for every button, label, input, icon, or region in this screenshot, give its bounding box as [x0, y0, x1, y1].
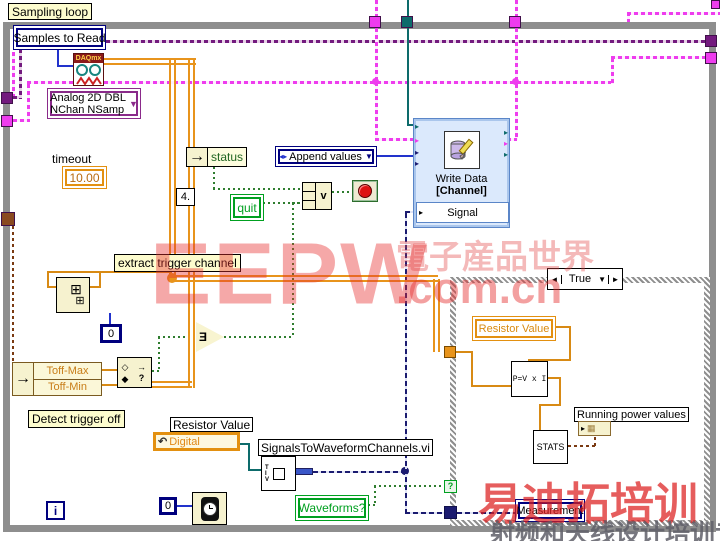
port-arrow-icon: ▸ — [504, 139, 508, 148]
write-data-icon — [444, 131, 480, 169]
enum-arrows-icon: ◂▸ — [279, 152, 287, 161]
wire-data-vert1 — [169, 58, 176, 280]
zero-wait-value: 0 — [165, 500, 171, 512]
measurement-label: Measurement — [516, 505, 583, 517]
wire-branch-a-top — [375, 0, 378, 82]
wire-branch-a-in — [375, 138, 413, 141]
waveforms-label: Waveforms? — [299, 501, 366, 515]
or-glyph: v — [316, 190, 331, 202]
wire-junction-pink1 — [372, 78, 379, 85]
wire-data-casedrop — [433, 279, 440, 352]
index-array-node[interactable]: ⊞ ⊞ — [56, 277, 90, 313]
append-values-label: Append values — [289, 151, 362, 163]
wire-err-up — [611, 58, 614, 84]
samples-to-read-control[interactable]: Samples to Read — [13, 25, 106, 50]
or-inputs — [303, 183, 316, 209]
port-arrow-icon: ▸ — [415, 148, 419, 157]
waveforms-boolean[interactable]: Waveforms? — [295, 495, 369, 521]
wire-status-v — [213, 167, 215, 190]
running-power-indicator[interactable]: ▸ ▦ — [578, 421, 611, 436]
toff-cluster-control[interactable]: → Toff-Max Toff-Min — [12, 362, 102, 396]
chevron-down-icon: ▼ — [129, 99, 138, 109]
refresh-arrow-icon: ↶ — [158, 435, 167, 448]
input-arrow-icon: ▸ — [419, 208, 423, 217]
port-arrow-icon: ▸ — [415, 159, 419, 168]
extract-trigger-label: extract trigger channel — [114, 254, 241, 272]
wire-toffmax — [102, 369, 117, 371]
digital-label: Digital — [169, 436, 200, 448]
wire-append-out — [377, 155, 413, 157]
wire-task-rise — [19, 42, 22, 99]
signal-label: Signal — [447, 207, 478, 219]
numeric-constant-4[interactable]: 4. — [176, 188, 195, 206]
status-label: status — [207, 148, 246, 166]
status-indicator[interactable]: → status — [186, 147, 247, 167]
daqmx-waveform-icon — [76, 76, 102, 85]
wire-dyn-signal-in — [405, 211, 413, 213]
wire-stats-in — [539, 404, 541, 431]
wire-data-vert2 — [188, 58, 195, 388]
daqmx-read-vi[interactable]: DAQmx — [73, 53, 104, 86]
measurement-control[interactable]: Measurement — [515, 499, 585, 522]
wire-digital-down — [248, 443, 250, 471]
wire-stats-out — [568, 445, 596, 447]
wire-err-out — [611, 56, 706, 59]
wire-data-main — [172, 275, 438, 282]
wire-wave-case — [374, 485, 450, 487]
quit-label: quit — [237, 201, 256, 215]
daqmx-glasses-icon — [76, 64, 101, 76]
in-range-coerce-node[interactable]: ◇ ◆ → ? — [117, 357, 152, 388]
case-prev-button[interactable]: ◄ — [548, 275, 562, 284]
toff-max-field[interactable]: Toff-Max — [34, 363, 101, 380]
wire-case-orange2 — [471, 351, 473, 387]
port-arrow-icon: ▸ — [504, 150, 508, 159]
wire-running-in — [594, 437, 596, 446]
wire-wait-in — [176, 505, 192, 507]
port-arrow-icon: ▸ — [415, 136, 419, 145]
port-arrow-icon: ▸ — [504, 128, 508, 137]
wire-rv-down — [569, 326, 571, 361]
wire-any-out — [224, 336, 293, 338]
wire-data-leftdrop — [47, 271, 49, 287]
resistor-value-name-label: Resistor Value — [170, 417, 253, 432]
port-arrow-icon: ▸ — [415, 122, 419, 131]
samples-to-read-label: Samples to Read — [13, 31, 105, 45]
arrow-right-icon: → — [187, 148, 207, 166]
selector-line1: Analog 2D DBL — [50, 92, 126, 104]
case-border-right[interactable] — [704, 277, 710, 526]
wire-trig-v — [292, 203, 294, 337]
wire-digital-in — [248, 469, 262, 471]
wire-err-main — [27, 81, 613, 84]
zero-constant-index[interactable]: 0 — [100, 324, 122, 343]
digital-control[interactable]: ↶ Digital — [153, 432, 240, 451]
wire-data-top — [104, 58, 196, 65]
tunnel-pink-top1[interactable] — [369, 16, 381, 28]
wait-ms-node[interactable] — [192, 492, 227, 525]
wire-inrange-up — [158, 337, 160, 372]
formula-text: P=V x I — [513, 375, 547, 384]
wire-err-rise — [27, 84, 30, 122]
chevron-down-icon: ▼ — [598, 275, 606, 284]
formula-node[interactable]: P=V x I — [511, 361, 548, 397]
tunnel-pink-top2[interactable] — [509, 16, 521, 28]
zero-index-value: 0 — [108, 328, 114, 340]
resistor-value-control[interactable]: Resistor Value — [472, 316, 556, 341]
detect-trigger-label: Detect trigger off — [28, 410, 125, 428]
zero-constant-wait[interactable]: 0 — [159, 497, 177, 515]
case-selector-value: True — [562, 273, 598, 285]
compound-or-node[interactable]: v — [302, 182, 332, 210]
running-power-label: Running power values — [574, 407, 689, 422]
exists-glyph: Ǝ — [199, 330, 207, 344]
stop-icon — [358, 184, 372, 198]
labview-block-diagram: Sampling loop — [0, 0, 720, 541]
wire-dyn-case-in — [405, 512, 445, 514]
timeout-value: 10.00 — [69, 171, 99, 185]
wire-branch-a-down — [375, 82, 378, 140]
daqmx-header: DAQmx — [74, 54, 103, 63]
iteration-terminal[interactable]: i — [46, 501, 65, 520]
timeout-label: timeout — [52, 152, 91, 166]
tunnel-navy-case[interactable] — [444, 506, 457, 519]
tunnel-orange-case[interactable] — [444, 346, 456, 358]
sampling-loop-label: Sampling loop — [8, 3, 92, 20]
arrow-right-icon: → — [13, 370, 33, 388]
wire-dyn-vert — [405, 213, 407, 513]
write-data-express-vi[interactable]: Write Data [Channel] ▸ Signal ▸ ▸ ▸ ▸ ▸ … — [413, 118, 510, 228]
selector-line2: NChan NSamp — [50, 104, 126, 116]
wire-dyn-h1 — [313, 471, 406, 473]
chevron-down-icon: ▼ — [365, 152, 373, 161]
stats-node[interactable]: STATS — [533, 430, 568, 464]
wire-formula-in — [471, 385, 512, 387]
wire-junction-orange — [167, 273, 177, 283]
stop-button[interactable] — [352, 180, 378, 202]
tunnel-pink-right[interactable] — [705, 52, 717, 64]
wire-dyn-measure — [457, 512, 515, 514]
wire-p-left — [539, 404, 561, 406]
input-arrow-icon: ▸ — [581, 424, 585, 433]
wire-or-out — [332, 191, 352, 193]
polymorphic-selector[interactable]: Analog 2D DBL NChan NSamp ▼ — [47, 88, 141, 119]
case-selector[interactable]: ◄ True ▼ ► — [547, 268, 623, 290]
signal-input-row[interactable]: ▸ Signal — [416, 202, 509, 223]
arrow-right-icon: → — [137, 362, 146, 373]
wire-data-inrange — [152, 381, 192, 388]
wire-task-top — [22, 40, 706, 43]
subvi-name-label: SignalsToWaveformChannels.vi — [258, 439, 433, 456]
subvi-square-icon — [273, 468, 285, 480]
any-true-node[interactable]: Ǝ — [196, 322, 224, 352]
diamond-filled-icon: ◆ — [122, 373, 129, 385]
tunnel-teal-top[interactable] — [401, 16, 413, 28]
constant-4-value: 4. — [181, 191, 190, 203]
wire-wave-up — [374, 486, 376, 506]
resistor-value-label: Resistor Value — [479, 323, 550, 335]
wire-cluster-vert — [12, 226, 14, 363]
append-values-enum[interactable]: ◂▸ Append values ▼ — [275, 146, 377, 167]
wire-junction-pink2 — [512, 78, 519, 85]
tunnel-pink-left[interactable] — [1, 115, 13, 127]
wire-topright-h — [627, 12, 720, 15]
subvi-glyph: TIV — [265, 465, 269, 483]
wire-status-h — [213, 188, 303, 190]
tunnel-plum-left[interactable] — [1, 92, 13, 104]
case-next-button[interactable]: ► — [608, 275, 622, 284]
iteration-label: i — [54, 504, 57, 518]
tunnel-brown-left[interactable] — [1, 212, 15, 226]
wire-subvi-stub — [295, 468, 313, 475]
watch-icon — [201, 497, 219, 521]
array-grid-icon: ⊞ — [75, 296, 84, 307]
tunnel-plum-right[interactable] — [705, 35, 717, 47]
diamond-open-icon: ◇ — [122, 361, 129, 373]
write-data-subtitle: [Channel] — [436, 185, 487, 197]
write-data-title: Write Data — [436, 173, 488, 185]
toff-min-field[interactable]: Toff-Min — [34, 380, 101, 396]
tunnel-corner-red — [711, 0, 720, 9]
timeout-constant[interactable]: 10.00 — [62, 166, 107, 189]
stats-label: STATS — [537, 442, 565, 452]
wire-p-down — [559, 377, 561, 406]
quit-boolean[interactable]: quit — [230, 194, 264, 221]
question-icon: ? — [139, 373, 145, 384]
wire-samples-h — [57, 65, 73, 67]
signals-to-waveform-subvi[interactable]: TIV — [261, 456, 296, 491]
wire-trig-in — [292, 202, 302, 204]
case-selector-tunnel[interactable]: ? — [444, 480, 457, 493]
cluster-grid-icon: ▦ — [587, 423, 596, 434]
wire-index-up — [99, 272, 101, 287]
wire-toffmin — [102, 384, 117, 386]
